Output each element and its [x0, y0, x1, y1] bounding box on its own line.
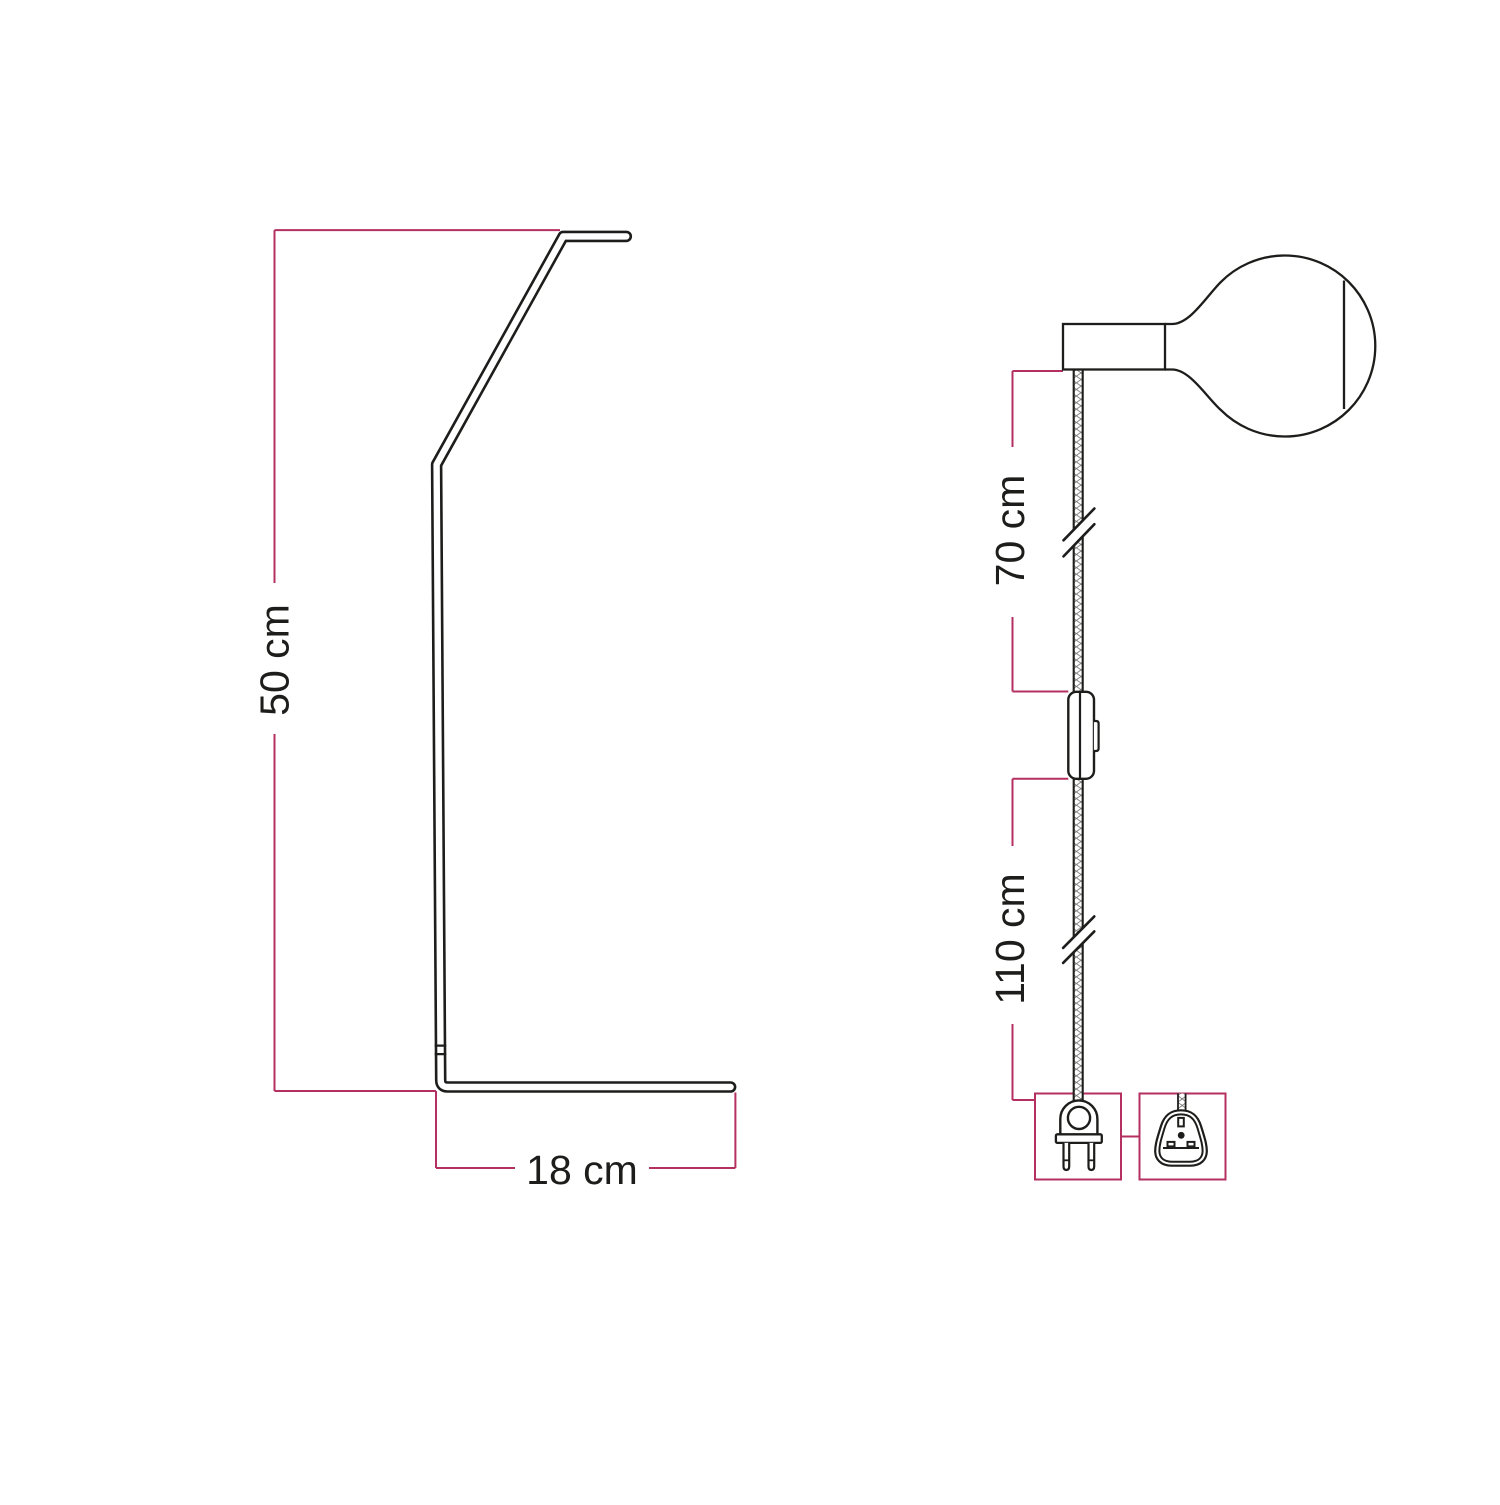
svg-text:70 cm: 70 cm — [987, 475, 1033, 587]
svg-text:50 cm: 50 cm — [252, 604, 298, 716]
svg-text:18 cm: 18 cm — [526, 1147, 638, 1193]
svg-text:110 cm: 110 cm — [987, 873, 1033, 1004]
